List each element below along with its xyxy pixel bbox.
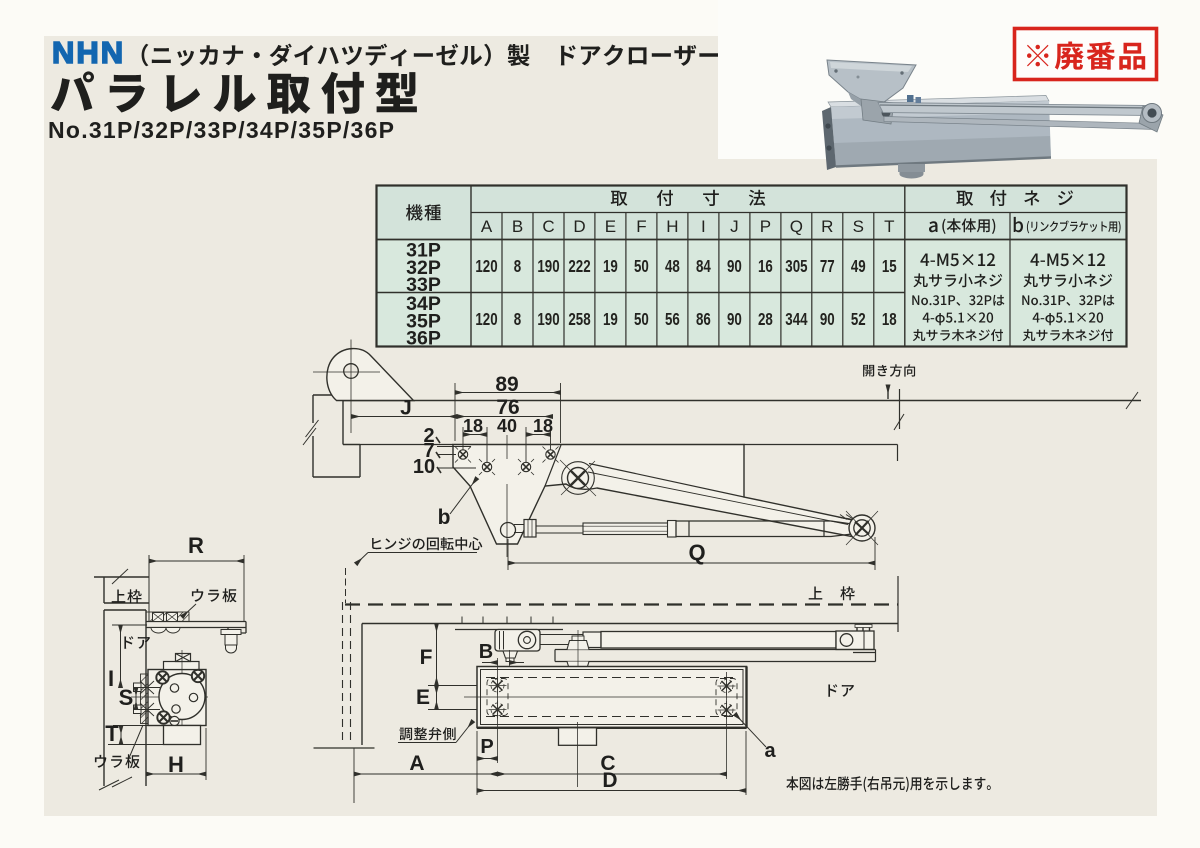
svg-text:P: P [480,736,493,758]
svg-text:J: J [400,397,412,420]
svg-text:90: 90 [727,257,742,276]
svg-text:B: B [479,641,493,663]
svg-text:10: 10 [413,456,435,478]
svg-text:19: 19 [603,310,618,329]
svg-text:B: B [512,217,523,236]
svg-text:C: C [542,217,554,236]
svg-text:S: S [853,217,864,236]
svg-text:E: E [416,686,430,709]
svg-text:50: 50 [634,257,649,276]
svg-text:D: D [573,217,585,236]
svg-text:56: 56 [665,310,680,329]
svg-text:16: 16 [758,257,773,276]
svg-text:52: 52 [851,310,866,329]
svg-text:18: 18 [882,310,897,329]
svg-text:86: 86 [696,310,711,329]
svg-text:F: F [636,217,646,236]
svg-text:190: 190 [537,310,559,329]
svg-text:8: 8 [514,310,522,329]
svg-text:S: S [119,685,134,710]
svg-text:J: J [730,217,739,236]
svg-text:I: I [108,666,114,691]
svg-text:89: 89 [495,373,518,396]
svg-text:T: T [884,217,894,236]
svg-text:15: 15 [882,257,897,276]
svg-text:190: 190 [537,257,559,276]
svg-text:P: P [760,217,771,236]
svg-text:40: 40 [497,416,517,436]
svg-text:18: 18 [463,416,483,436]
svg-text:H: H [168,752,184,777]
svg-text:8: 8 [514,257,522,276]
svg-text:b: b [438,506,451,529]
svg-text:NHN: NHN [52,35,125,70]
svg-text:a: a [764,740,776,762]
svg-text:A: A [409,752,424,775]
svg-text:258: 258 [568,310,590,329]
svg-text:Q: Q [688,540,705,565]
svg-text:Q: Q [790,217,803,236]
svg-text:E: E [605,217,616,236]
svg-text:305: 305 [785,257,807,276]
svg-text:50: 50 [634,310,649,329]
svg-text:120: 120 [475,257,497,276]
svg-text:90: 90 [727,310,742,329]
svg-text:90: 90 [820,310,835,329]
svg-text:120: 120 [475,310,497,329]
svg-text:222: 222 [568,257,590,276]
svg-text:48: 48 [665,257,680,276]
svg-text:F: F [420,646,433,669]
svg-text:T: T [105,721,119,746]
svg-text:28: 28 [758,310,773,329]
svg-text:84: 84 [696,257,711,276]
svg-text:36P: 36P [406,328,441,350]
svg-text:19: 19 [603,257,618,276]
svg-text:No.31P/32P/33P/34P/35P/36P: No.31P/32P/33P/34P/35P/36P [48,117,394,143]
svg-text:344: 344 [785,310,807,329]
svg-text:A: A [481,217,493,236]
svg-text:D: D [602,769,617,792]
svg-text:R: R [188,533,204,558]
svg-text:49: 49 [851,257,866,276]
svg-text:R: R [821,217,833,236]
svg-text:77: 77 [820,257,835,276]
svg-text:I: I [701,217,706,236]
svg-text:18: 18 [533,416,553,436]
svg-text:H: H [666,217,678,236]
